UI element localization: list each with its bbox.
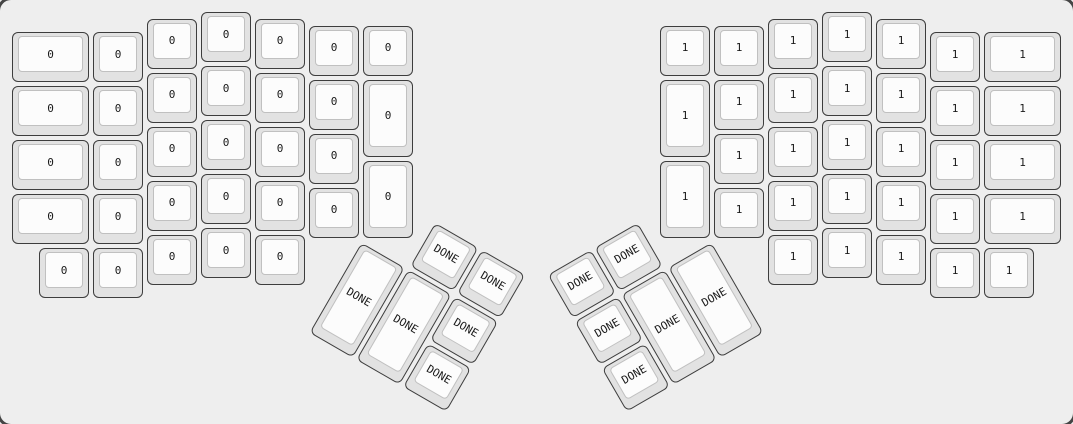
- keycap-top-surface: DONE: [601, 229, 652, 279]
- keyboard-canvas: 0000000000000000000000000000000011111111…: [0, 0, 1073, 424]
- key-legend: DONE: [620, 363, 648, 386]
- key-legend: DONE: [700, 286, 728, 309]
- key-legend: DONE: [566, 270, 594, 293]
- keycap-top-surface: DONE: [555, 256, 606, 306]
- keycap-top-surface: DONE: [582, 303, 633, 353]
- key-legend: DONE: [593, 316, 621, 339]
- keycap-top-surface: DONE: [609, 349, 660, 399]
- key-legend: DONE: [613, 243, 641, 266]
- key-legend: DONE: [653, 313, 681, 336]
